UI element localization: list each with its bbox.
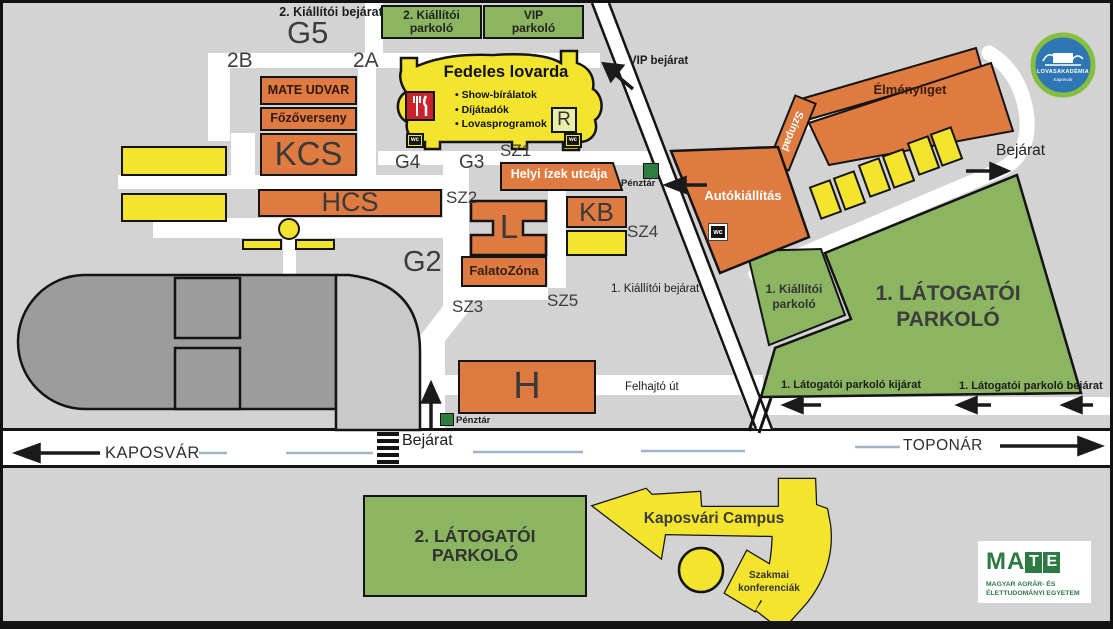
- lovasakademia-name: LOVASAKADÉMIA: [1032, 69, 1094, 75]
- h-building: H: [458, 360, 596, 414]
- yellow-bar-2: [296, 240, 334, 249]
- conference-label: Szakmai konferenciák: [728, 569, 810, 595]
- road-mid-horizontal: [118, 175, 448, 189]
- wc-tab-right: wc: [564, 133, 582, 148]
- kb-label: KB: [579, 198, 614, 227]
- stadium-inner-block-1: [175, 278, 240, 338]
- stadium-inner-block-2: [175, 348, 240, 409]
- autokiallitas-label: Autókiállítás: [691, 188, 795, 203]
- kaposvar-label: KAPOSVÁR: [105, 444, 200, 463]
- sector-sz4: SZ4: [627, 222, 658, 242]
- visitor-parking-2-line2: PARKOLÓ: [365, 546, 585, 565]
- sector-sz2: SZ2: [446, 188, 477, 208]
- map-bottom-border: [3, 621, 1113, 629]
- road-kb-vertical: [548, 191, 566, 288]
- mate-letter-t: T: [1025, 552, 1042, 573]
- bejarat-right-label: Bejárat: [996, 142, 1066, 160]
- visitor-parking-1-label: 1. LÁTOGATÓI PARKOLÓ: [858, 281, 1038, 334]
- visitor-parking-1-line2: PARKOLÓ: [858, 307, 1038, 333]
- mate-subtitle: MAGYAR AGRÁR- ÉS ÉLETTUDOMÁNYI EGYETEM: [986, 580, 1083, 598]
- road-kcs-vertical: [358, 68, 376, 186]
- main-road-top-line: [3, 428, 1113, 431]
- lovasakademia-logo: [1033, 35, 1093, 95]
- mate-letter-e: E: [1043, 552, 1060, 573]
- wc-icon: wc: [409, 136, 421, 145]
- hcs-label: HCS: [321, 188, 378, 218]
- h-label: H: [513, 366, 540, 408]
- mate-wordmark: M A T E: [986, 548, 1083, 576]
- wc-tab-left: wc: [406, 133, 424, 148]
- visitor-parking-1-exit-label: 1. Látogatói parkoló kijárat: [781, 379, 931, 391]
- exhibitor-parking-1-line1: 1. Kiállítói: [751, 282, 837, 297]
- falatozona-building: FalatoZóna: [461, 256, 547, 287]
- yellow-bar-1: [243, 240, 281, 249]
- conference-line1: Szakmai: [728, 569, 810, 582]
- cashier-label-top: Pénztár: [621, 178, 671, 189]
- sector-sz5: SZ5: [547, 291, 578, 311]
- vip-entrance-label: VIP bejárat: [629, 55, 709, 67]
- bejarat-bottom-label: Bejárat: [402, 432, 472, 450]
- yellow-building-1: [121, 146, 227, 176]
- exhibitor-parking-1-label: 1. Kiállítói parkoló: [751, 282, 837, 312]
- campus-title-label: Kaposvári Campus: [639, 510, 789, 528]
- lovarda-title: Fedeles lovarda: [431, 63, 581, 82]
- cashier-label-bottom: Pénztár: [456, 415, 502, 426]
- vip-parking-box: VIP parkoló: [483, 5, 584, 39]
- visitor-parking-2-box: 2. LÁTOGATÓI PARKOLÓ: [363, 495, 587, 597]
- visitor-parking-1-entry-label: 1. Látogatói parkoló bejárat: [959, 380, 1109, 392]
- visitor-parking-1-line1: 1. LÁTOGATÓI: [858, 281, 1038, 307]
- sector-sz3: SZ3: [452, 297, 483, 317]
- fork-knife-icon: [407, 93, 433, 119]
- campus-shape: [593, 479, 831, 629]
- fozoverseny-building: Főzőverseny: [260, 107, 357, 131]
- hcs-building: HCS: [258, 189, 442, 217]
- mate-subtitle-line2: ÉLETTUDOMÁNYI EGYETEM: [986, 589, 1083, 598]
- wc-icon: wc: [567, 136, 579, 145]
- mate-udvar-label: MATE UDVAR: [268, 84, 349, 98]
- kcs-building: KCS: [260, 133, 357, 176]
- event-venue-map: 2. Kiállítói parkoló VIP parkoló MATE UD…: [0, 0, 1113, 629]
- exhibitor-parking-2-box: 2. Kiállítói parkoló: [381, 5, 482, 39]
- road-circle-stub: [283, 236, 296, 276]
- toponar-label: TOPONÁR: [903, 437, 998, 455]
- mate-logo: M A T E MAGYAR AGRÁR- ÉS ÉLETTUDOMÁNYI E…: [978, 541, 1091, 603]
- lovasakademia-city: Kaposvár: [1043, 77, 1083, 82]
- mate-udvar-building: MATE UDVAR: [260, 76, 357, 105]
- felhajto-ut-label: Felhajtó út: [625, 381, 705, 393]
- mate-letter-m: M: [986, 548, 1006, 576]
- sector-g4: G4: [395, 152, 420, 174]
- elmenyliget-label: Élményliget: [855, 82, 965, 97]
- l-building-label: L: [498, 208, 520, 246]
- lovarda-item-1: Show-bírálatok: [455, 88, 575, 103]
- wc-icon-autokiallitas: wc: [709, 224, 727, 240]
- sector-g5: G5: [287, 15, 328, 51]
- roundabout-circle: [279, 219, 299, 239]
- mate-subtitle-line1: MAGYAR AGRÁR- ÉS: [986, 580, 1083, 589]
- conference-line2: konferenciák: [728, 582, 810, 595]
- campus-circle: [679, 548, 723, 592]
- mate-letter-a: A: [1007, 548, 1024, 576]
- exhibitor-parking-1-line2: parkoló: [751, 297, 837, 312]
- cashier-box-top: [643, 163, 659, 179]
- sector-g3: G3: [459, 152, 484, 174]
- exhibitor-parking-2-label-line2: parkoló: [383, 22, 480, 35]
- r-label: R: [557, 110, 571, 131]
- sz4-yellow-box: [566, 230, 627, 256]
- stadium-annex: [336, 275, 420, 430]
- falatozona-label: FalatoZóna: [469, 264, 538, 278]
- restaurant-icon: [405, 91, 435, 121]
- sector-g2: G2: [403, 246, 442, 279]
- sector-2a: 2A: [353, 49, 379, 73]
- cashier-box-bottom: [440, 413, 454, 426]
- helyi-izek-label: Helyi ízek utcája: [502, 167, 616, 181]
- main-road-bottom-line: [3, 465, 1113, 468]
- yellow-building-2: [121, 193, 227, 222]
- fozoverseny-label: Főzőverseny: [270, 112, 346, 126]
- r-box: R: [551, 107, 577, 133]
- sector-2b: 2B: [227, 49, 253, 73]
- exhibitor-entrance-1-label: 1. Kiállítói bejárat: [611, 283, 721, 295]
- kcs-label: KCS: [275, 136, 343, 172]
- exhibitor-entrance-2-label: 2. Kiállítói bejárat: [271, 5, 391, 19]
- vip-parking-label-line2: parkoló: [485, 22, 582, 35]
- visitor-parking-2-line1: 2. LÁTOGATÓI: [365, 527, 585, 546]
- sector-sz1: SZ1: [500, 141, 531, 161]
- kb-building: KB: [566, 196, 627, 228]
